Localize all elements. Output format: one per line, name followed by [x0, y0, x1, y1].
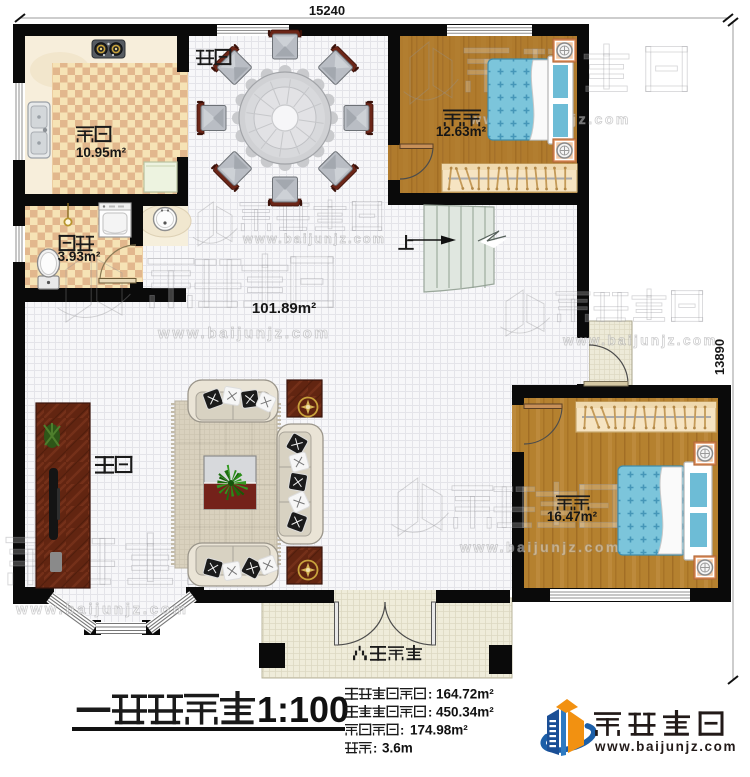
svg-text:3.6m: 3.6m [382, 741, 413, 756]
svg-text:450.34m²: 450.34m² [436, 705, 494, 720]
svg-text:www.baijunjz.com: www.baijunjz.com [15, 601, 189, 618]
svg-text::: : [400, 723, 404, 738]
svg-text:12.63m²: 12.63m² [436, 124, 487, 139]
svg-text::: : [428, 705, 432, 720]
svg-text:www.baijunjz.com: www.baijunjz.com [594, 739, 737, 754]
svg-text:www.baijunjz.com: www.baijunjz.com [562, 333, 718, 348]
svg-text:3.93m²: 3.93m² [58, 249, 101, 264]
svg-text:16.47m²: 16.47m² [547, 509, 598, 524]
svg-text:www.baijunjz.com: www.baijunjz.com [459, 539, 621, 555]
svg-text::: : [373, 741, 377, 756]
svg-text:15240: 15240 [309, 3, 345, 18]
svg-text:101.89m²: 101.89m² [252, 300, 316, 317]
svg-text:www.baijunjz.com: www.baijunjz.com [157, 325, 331, 342]
svg-text::: : [428, 687, 432, 702]
svg-text:174.98m²: 174.98m² [410, 723, 468, 738]
svg-text:1:100: 1:100 [257, 689, 349, 730]
svg-text:www.baijunjz.com: www.baijunjz.com [242, 232, 386, 246]
svg-text:164.72m²: 164.72m² [436, 687, 494, 702]
svg-text:10.95m²: 10.95m² [76, 145, 127, 160]
